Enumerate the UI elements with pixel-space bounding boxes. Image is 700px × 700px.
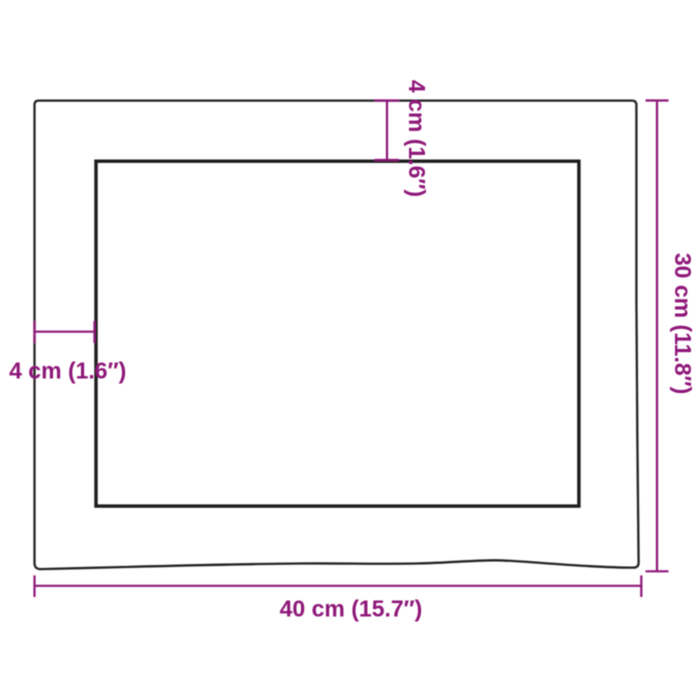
svg-text:4 cm (1.6″): 4 cm (1.6″) xyxy=(9,358,126,384)
svg-text:30 cm (11.8″): 30 cm (11.8″) xyxy=(670,253,696,394)
svg-text:40 cm (15.7″): 40 cm (15.7″) xyxy=(280,596,423,622)
svg-text:4 cm (1.6″): 4 cm (1.6″) xyxy=(404,80,430,197)
